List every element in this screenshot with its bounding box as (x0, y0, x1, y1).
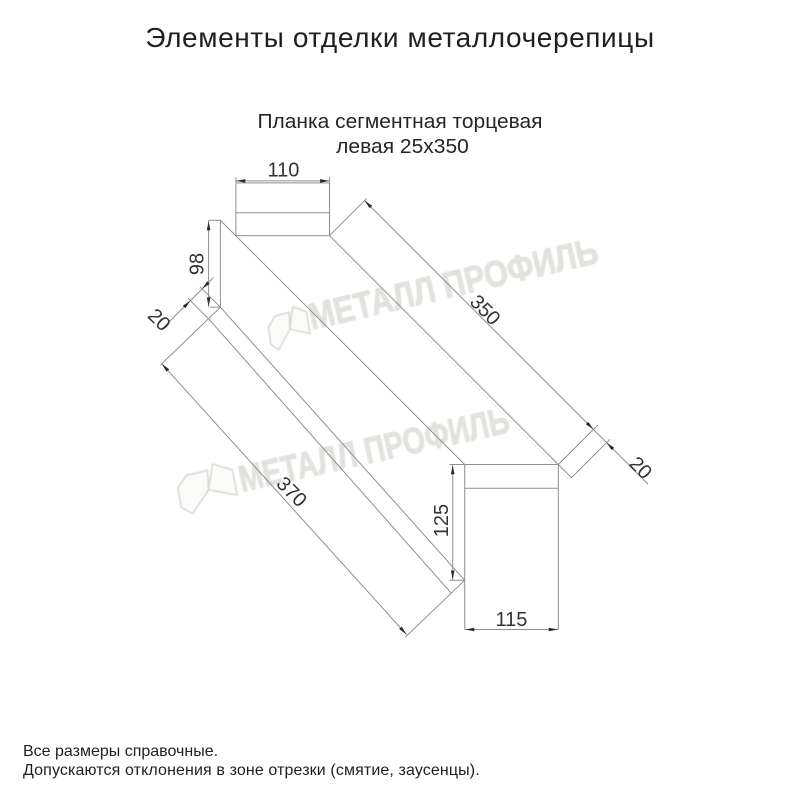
svg-text:115: 115 (496, 609, 528, 631)
svg-text:125: 125 (431, 504, 453, 537)
svg-text:20: 20 (143, 305, 174, 336)
svg-text:110: 110 (268, 160, 300, 182)
svg-text:МЕТАЛЛ ПРОФИЛЬ: МЕТАЛЛ ПРОФИЛЬ (304, 230, 602, 338)
svg-text:20: 20 (625, 453, 656, 484)
svg-text:98: 98 (187, 253, 209, 275)
